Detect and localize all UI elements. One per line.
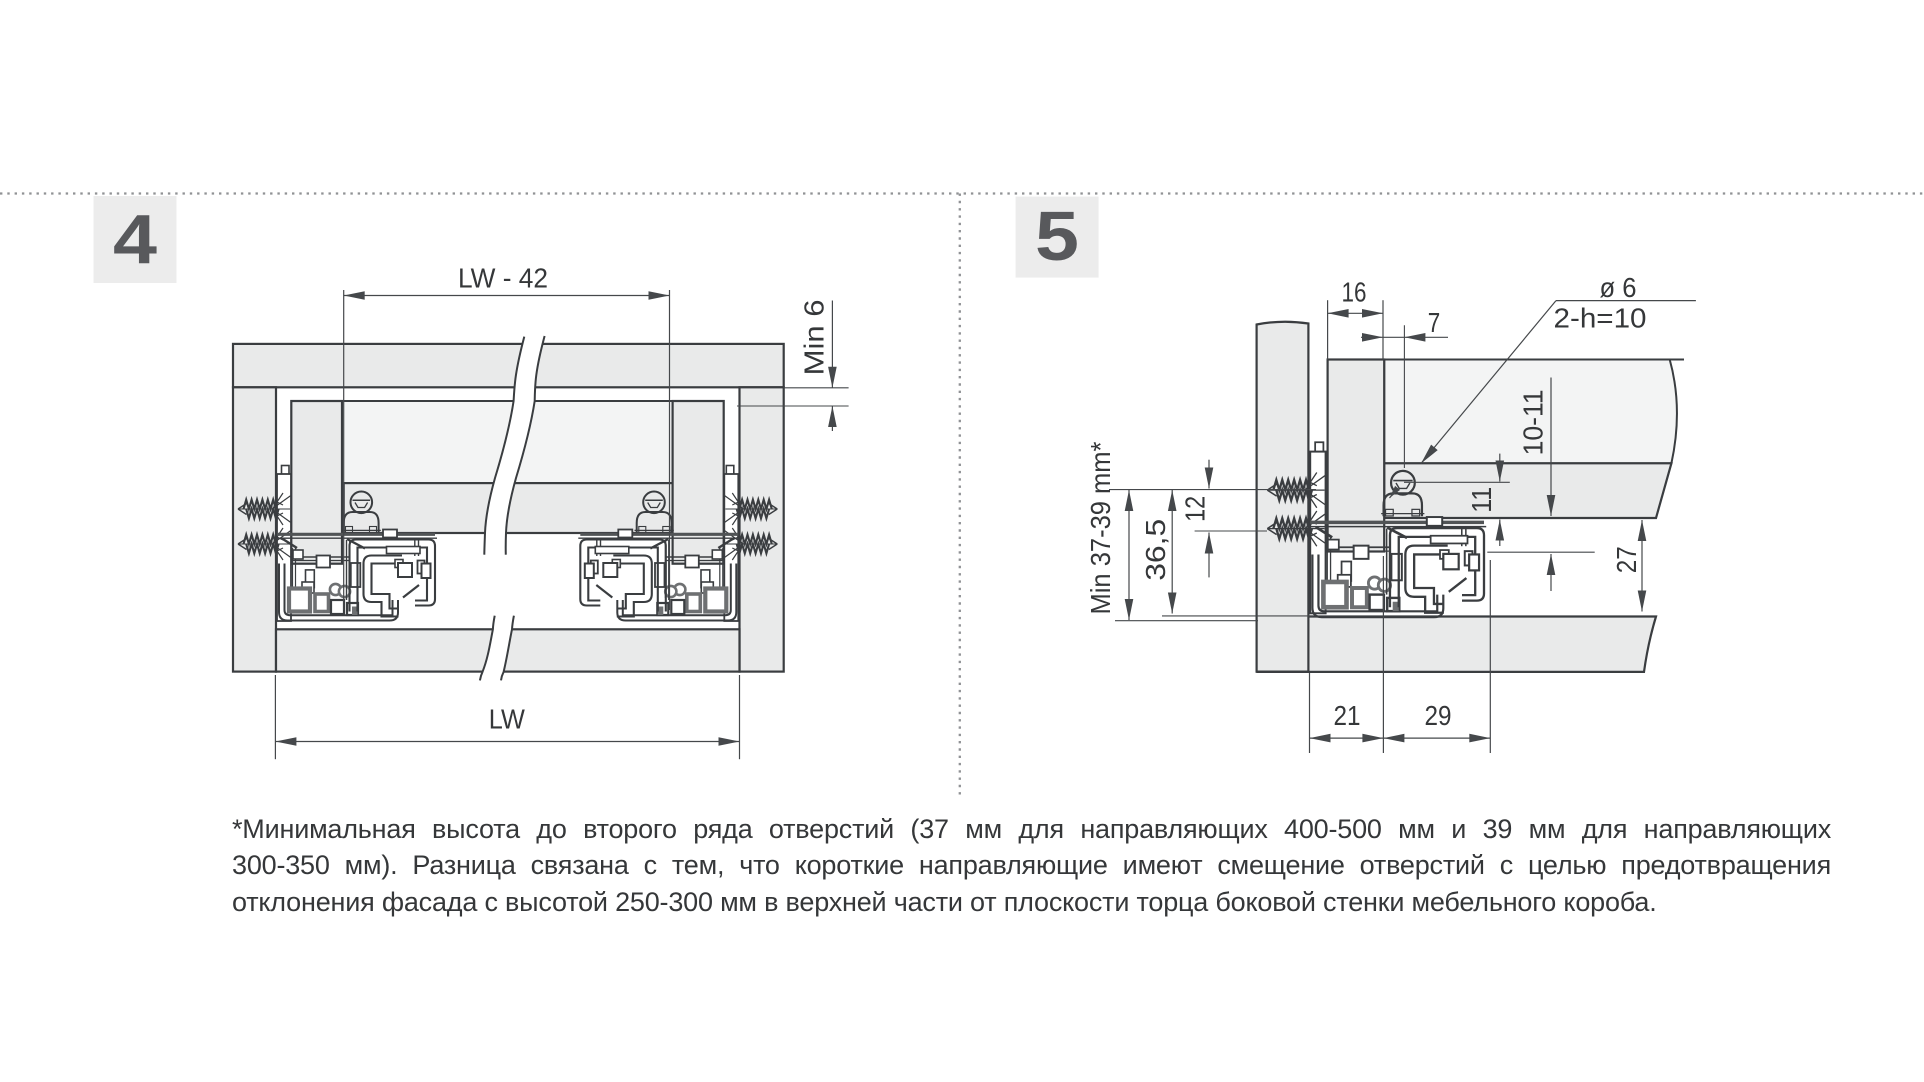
svg-text:LW: LW <box>489 704 526 735</box>
svg-text:Min 6: Min 6 <box>799 299 830 375</box>
svg-text:29: 29 <box>1425 700 1452 731</box>
svg-text:5: 5 <box>1035 197 1079 275</box>
svg-text:36,5: 36,5 <box>1140 519 1171 581</box>
svg-text:21: 21 <box>1334 700 1361 731</box>
svg-text:2-h=10: 2-h=10 <box>1554 303 1647 334</box>
svg-text:12: 12 <box>1180 496 1211 522</box>
svg-text:27: 27 <box>1611 546 1642 573</box>
svg-text:Min 37-39 mm*: Min 37-39 mm* <box>1085 441 1116 614</box>
svg-text:16: 16 <box>1342 276 1367 307</box>
svg-text:LW - 42: LW - 42 <box>458 263 548 294</box>
svg-text:ø 6: ø 6 <box>1600 272 1637 303</box>
svg-text:10-11: 10-11 <box>1517 389 1548 455</box>
svg-text:11: 11 <box>1466 487 1497 513</box>
svg-text:7: 7 <box>1428 307 1441 338</box>
svg-text:4: 4 <box>113 201 157 279</box>
